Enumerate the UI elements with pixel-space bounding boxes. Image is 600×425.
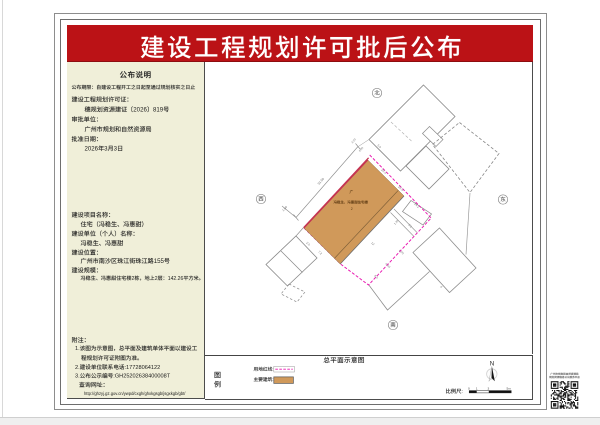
svg-text:5m: 5m (507, 386, 512, 390)
svg-text:1.: 1. (75, 346, 80, 352)
svg-text:155: 155 (154, 258, 165, 265)
svg-text:3.: 3. (75, 374, 80, 380)
svg-text:3: 3 (114, 146, 118, 153)
svg-text:6: 6 (439, 285, 443, 289)
svg-text:3: 3 (104, 146, 108, 153)
svg-text::GH25202638400008T: :GH25202638400008T (113, 374, 170, 380)
svg-text:1.30: 1.30 (393, 219, 400, 226)
svg-text:14.2: 14.2 (413, 202, 420, 209)
svg-text:2: 2 (132, 276, 135, 282)
svg-text:2: 2 (155, 276, 158, 282)
svg-text:7.2: 7.2 (317, 250, 323, 256)
svg-text:http://ghzyj.gz.gov.cn/ywpd/cx: http://ghzyj.gz.gov.cn/ywpd/cxgh/ghxkgsg… (84, 391, 186, 396)
svg-text:4.00: 4.00 (398, 248, 405, 255)
svg-text:3.20: 3.20 (350, 137, 357, 144)
svg-text:819: 819 (153, 107, 164, 114)
svg-text::: : (272, 367, 273, 372)
svg-text::17728064122: :17728064122 (124, 365, 160, 371)
svg-text:2.: 2. (75, 365, 80, 371)
svg-text:12: 12 (370, 241, 375, 246)
svg-text:2.0: 2.0 (305, 241, 311, 247)
svg-text:1: 1 (476, 386, 478, 390)
svg-text:142.26: 142.26 (168, 276, 184, 282)
svg-text::: : (272, 377, 273, 382)
svg-text:2: 2 (351, 207, 353, 211)
svg-text:4.00: 4.00 (384, 262, 391, 269)
svg-text:31.50: 31.50 (317, 177, 325, 186)
svg-text:3: 3 (488, 386, 490, 390)
svg-text:2026: 2026 (85, 146, 99, 153)
svg-text:2026: 2026 (133, 107, 147, 114)
svg-text::: : (461, 389, 462, 395)
svg-text:0: 0 (468, 386, 470, 390)
svg-text:6.00: 6.00 (358, 146, 365, 153)
